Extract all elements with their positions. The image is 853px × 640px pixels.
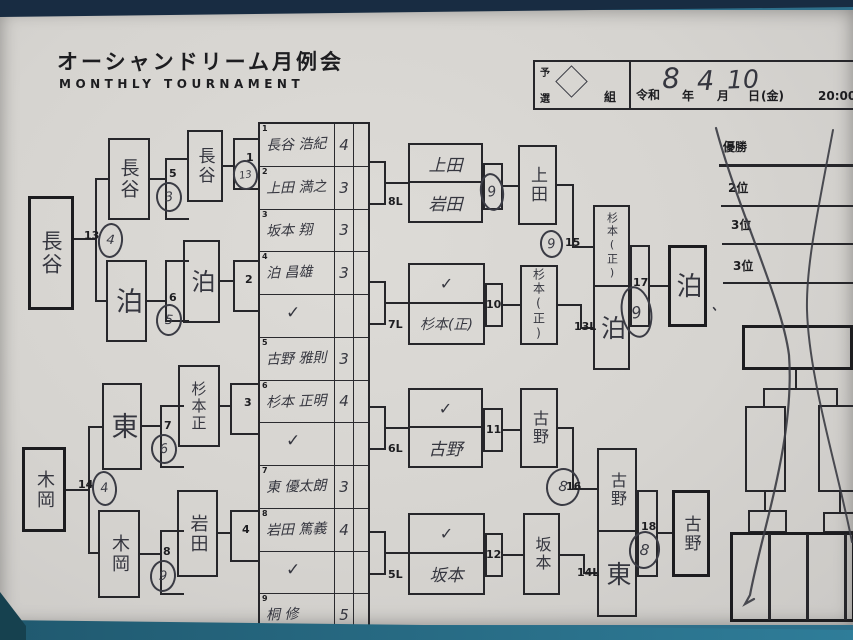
- entry-list: 1長谷 浩紀4 2上田 満之3 3坂本 翔3 4泊 昌雄3 ✓ 5古野 雅則3 …: [258, 122, 370, 638]
- bye-row: ✓: [260, 422, 368, 465]
- winner-box-ueda: 上田: [518, 145, 557, 225]
- winner-name: 木岡: [100, 512, 138, 596]
- entry-score: 4: [339, 392, 349, 410]
- group-label: 組: [604, 88, 616, 105]
- pen-tick: 、: [711, 294, 727, 316]
- paper-sheet: オーシャンドリーム月例会 MONTHLY TOURNAMENT 予 選 組 令和…: [0, 10, 853, 625]
- bye-row: ✓: [260, 294, 368, 337]
- winner-box-sakamoto: 坂本: [523, 513, 560, 595]
- match5-number: 5: [169, 167, 177, 180]
- match2-number: 2: [245, 273, 253, 286]
- match6-circled-score: 5: [155, 303, 183, 337]
- preliminary-label-bottom: 選: [540, 90, 550, 105]
- pair-5L-label: 5L: [388, 568, 403, 581]
- winner-name: 長谷: [110, 140, 148, 218]
- era-label: 令和: [636, 86, 660, 103]
- entry-no: 2: [262, 167, 268, 176]
- match15-number: 15: [565, 236, 580, 249]
- winner-name: 泊: [185, 242, 218, 321]
- pair-8L-box: 上田 岩田: [408, 143, 483, 223]
- entry-score: 3: [339, 179, 349, 197]
- mini-bracket-slot-right: [818, 405, 853, 492]
- pair-7L-box: ✓ 杉本(正): [408, 263, 485, 345]
- pair-bottom-name: 杉本(正): [420, 314, 473, 334]
- day-suffix: 日: [748, 87, 760, 104]
- entry-score: 3: [339, 478, 349, 496]
- entry-row: 5古野 雅則3: [260, 337, 368, 380]
- third-place-label-a: 3位: [731, 216, 751, 233]
- entry-score: 4: [339, 521, 349, 539]
- winner-name: 杉本(正): [522, 267, 556, 343]
- winner-name: 東: [104, 385, 140, 468]
- winner-name: 岩田: [179, 492, 216, 575]
- second-place-label: 2位: [728, 179, 748, 196]
- semi-13L-box: 杉本(正) 泊: [593, 205, 630, 370]
- match10-number: 10: [486, 298, 501, 311]
- entry-score: 3: [339, 221, 349, 239]
- entry-no: 7: [262, 466, 268, 475]
- weekday-label: (金): [761, 87, 784, 104]
- check-mark: ✓: [440, 274, 453, 293]
- winner-name: 長谷: [189, 132, 221, 200]
- entry-no: 1: [262, 124, 268, 133]
- mini-bracket-slot-left: [745, 406, 786, 492]
- match12-number: 12: [486, 548, 501, 561]
- preliminary-label-top: 予: [540, 64, 550, 79]
- handwritten-month: 4: [696, 66, 714, 98]
- winner-box-sugimoto: 杉本(正): [520, 265, 558, 345]
- left-r1-winner1-box: 長谷: [187, 130, 223, 202]
- entry-name: 岩田 篤義: [266, 518, 327, 540]
- finalist-box-tomari: 泊: [668, 245, 707, 327]
- entry-score: 3: [339, 350, 349, 368]
- pair-6L-label: 6L: [388, 442, 403, 455]
- match4-number: 4: [242, 523, 250, 536]
- entry-name: 泊 昌雄: [266, 261, 313, 283]
- match8-number: 8: [163, 545, 171, 558]
- entry-name: 古野 雅則: [266, 347, 327, 369]
- left-match4-step: [230, 510, 260, 562]
- check-mark: ✓: [286, 560, 300, 580]
- left-r2-winner1-box: 長谷: [108, 138, 150, 220]
- winner-name: 古野: [522, 390, 556, 466]
- entry-name: 桐 修: [266, 604, 299, 625]
- entry-no: 8: [262, 509, 268, 518]
- entry-no: 6: [262, 381, 268, 390]
- pair-bottom-name: 古野: [429, 435, 463, 460]
- entry-name: 坂本 翔: [266, 219, 313, 241]
- entry-row: 6杉本 正明4: [260, 380, 368, 423]
- winner-name: 上田: [520, 147, 555, 223]
- entry-score: 3: [339, 264, 349, 282]
- finalist-name: 古野: [675, 493, 707, 574]
- check-mark: ✓: [286, 431, 300, 451]
- finalist-name: 長谷: [31, 199, 71, 307]
- entry-no: 3: [262, 210, 268, 219]
- page-subtitle: MONTHLY TOURNAMENT: [59, 77, 304, 91]
- entry-row: 4泊 昌雄3: [260, 251, 368, 294]
- pair-6L-box: ✓ 古野: [408, 388, 483, 468]
- right-step-4: [370, 531, 386, 575]
- match13-circled-score: 4: [96, 222, 125, 259]
- header-divider: [629, 62, 631, 108]
- left-r2-winner3-box: 東: [102, 383, 142, 470]
- entry-no: 5: [262, 338, 268, 347]
- match11-number: 11: [486, 423, 501, 436]
- entry-row: 8岩田 篤義4: [260, 508, 368, 551]
- check-mark: ✓: [439, 399, 452, 418]
- entry-score: 5: [339, 606, 349, 624]
- entry-row: 2上田 満之3: [260, 166, 368, 209]
- winner-name: 杉本正: [180, 367, 218, 445]
- bye-row: ✓: [260, 551, 368, 594]
- photo-of-tournament-sheet: オーシャンドリーム月例会 MONTHLY TOURNAMENT 予 選 組 令和…: [0, 0, 853, 640]
- entry-row: 7東 優太朗3: [260, 465, 368, 508]
- entry-name: 杉本 正明: [266, 389, 327, 411]
- entry-no: 4: [262, 252, 268, 261]
- winner-name: 泊: [108, 262, 145, 340]
- left-r1-winner3-box: 杉本正: [178, 365, 220, 447]
- winner-name: 坂本: [525, 515, 558, 593]
- right-step-2: [370, 281, 386, 325]
- left-r2-winner2-box: 泊: [106, 260, 147, 342]
- semi-13L-label: 13L: [574, 320, 596, 333]
- champion-label: 優勝: [723, 138, 747, 155]
- entry-name: 上田 満之: [266, 176, 327, 198]
- match14-circled-score: 4: [91, 470, 119, 507]
- match16-number: 16: [566, 480, 581, 493]
- finalist-box-furuno: 古野: [672, 490, 710, 577]
- semi-top-name: 杉本(正): [595, 207, 628, 285]
- left-finalist-bottom-box: 木岡: [22, 447, 66, 532]
- page-title: オーシャンドリーム月例会: [57, 46, 344, 76]
- right-step-3: [370, 406, 386, 450]
- entry-row: 3坂本 翔3: [260, 209, 368, 252]
- left-match3-step: [230, 383, 260, 435]
- check-mark: ✓: [286, 303, 300, 323]
- finalist-name: 泊: [671, 248, 704, 324]
- left-match2-step: [233, 260, 260, 312]
- match6-number: 6: [169, 291, 177, 304]
- match3-number: 3: [244, 396, 252, 409]
- semi-top-name: 古野: [599, 450, 635, 530]
- semi-14L-label: 14L: [577, 566, 599, 579]
- left-finalist-top-box: 長谷: [28, 196, 74, 310]
- finalist-name: 木岡: [25, 450, 63, 529]
- handwritten-year: 8: [661, 62, 680, 96]
- third-place-label-b: 3位: [733, 257, 753, 274]
- mini-bracket-step-right: [823, 512, 853, 533]
- mini-bracket-entry-grid: [730, 532, 853, 622]
- pair-5L-box: ✓ 坂本: [408, 513, 485, 595]
- entry-name: 長谷 浩紀: [266, 133, 327, 155]
- pair-bottom-name: 岩田: [429, 190, 463, 215]
- winner-box-furuno: 古野: [520, 388, 558, 468]
- pair-top-name: 上田: [429, 151, 463, 176]
- right-step-1: [370, 161, 386, 205]
- semi-14L-box: 古野 東: [597, 448, 637, 617]
- mini-bracket-step-left: [748, 510, 787, 533]
- mini-bracket-champion-box: [742, 325, 853, 370]
- pair-7L-label: 7L: [388, 318, 403, 331]
- entry-score: 4: [339, 136, 349, 154]
- entry-name: 東 優太朗: [266, 475, 327, 497]
- check-mark: ✓: [440, 524, 453, 543]
- entry-no: 9: [262, 594, 268, 603]
- start-time: 20:00〜: [818, 87, 853, 104]
- left-r2-winner4-box: 木岡: [98, 510, 140, 598]
- pair-8L-label: 8L: [388, 195, 403, 208]
- pair-bottom-name: 坂本: [430, 561, 464, 586]
- entry-row: 1長谷 浩紀4: [260, 124, 368, 166]
- match15-circled-score: 9: [539, 229, 565, 259]
- match7-number: 7: [164, 419, 172, 432]
- year-suffix: 年: [682, 87, 694, 104]
